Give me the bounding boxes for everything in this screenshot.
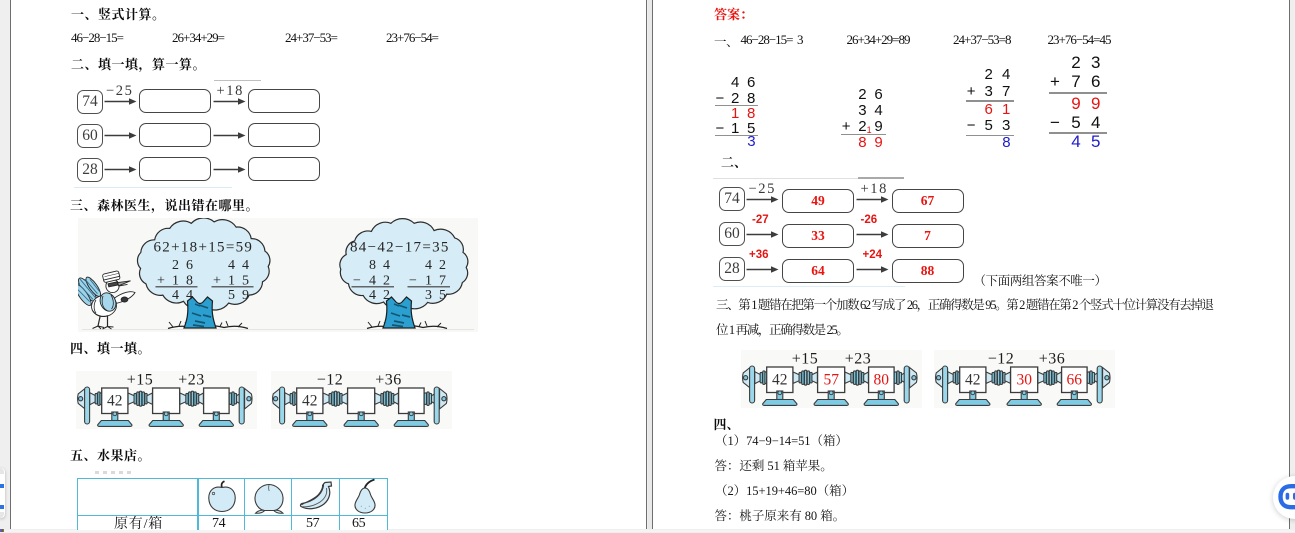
svg-text:+15: +15 [127, 372, 154, 389]
svg-text:59: 59 [228, 288, 256, 303]
svg-text:26: 26 [172, 258, 200, 273]
svg-text:42: 42 [965, 372, 981, 389]
svg-text:62+18+15=59: 62+18+15=59 [154, 240, 254, 256]
svg-text:+15: +15 [792, 351, 819, 368]
svg-text:42: 42 [302, 393, 318, 410]
svg-text:42: 42 [425, 258, 453, 273]
svg-text:35: 35 [425, 288, 453, 303]
svg-text:+23: +23 [845, 351, 872, 368]
svg-text:84: 84 [369, 258, 397, 273]
svg-text:+36: +36 [375, 372, 402, 389]
svg-text:66: 66 [1066, 372, 1082, 389]
svg-text:57: 57 [823, 372, 839, 389]
svg-text:44: 44 [172, 288, 200, 303]
svg-text:80: 80 [874, 372, 890, 389]
svg-text:84−42−17=35: 84−42−17=35 [350, 240, 450, 256]
svg-text:30: 30 [1016, 372, 1032, 389]
svg-text:42: 42 [107, 393, 123, 410]
svg-text:44: 44 [228, 258, 256, 273]
svg-text:+23: +23 [178, 372, 205, 389]
svg-text:−12: −12 [987, 351, 1014, 368]
svg-text:+36: +36 [1038, 351, 1065, 368]
svg-text:−12: −12 [316, 372, 343, 389]
svg-text:42: 42 [369, 288, 397, 303]
svg-text:42: 42 [772, 372, 788, 389]
